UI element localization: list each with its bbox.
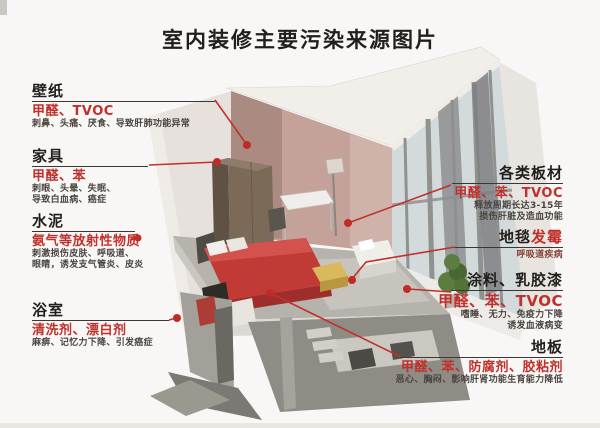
page-title: 室内装修主要污染来源图片 [0,24,600,54]
floor-title: 地板 [353,339,563,356]
label-bathroom: 浴室 清洗剂、漂白剂 麻痹、记忆力下降、引发癌症 [32,302,242,349]
wallpaper-dot [243,141,251,149]
paint-title: 涂料、乳胶漆 [353,272,563,289]
floor-pollutants: 甲醛、苯、防腐剂、胶粘剂 [353,360,563,375]
label-paint: 涂料、乳胶漆 甲醛、苯、TVOC 嗜睡、无力、免疫力下降 诱发血液病变 [353,272,563,332]
floor-underline [400,357,563,358]
carpet-effects: 呼吸道疾病 [353,250,563,261]
boards-underline [452,183,563,184]
cement-effects: 眼睛，诱发支气管炎、皮炎 [32,260,242,271]
lamp-shade [326,158,344,174]
label-wallpaper: 壁纸 甲醛、TVOC 刺鼻、头痛、厌食、导致肝肺功能异常 [32,83,242,130]
boards-pollutants: 甲醛、苯、TVOC [353,186,563,201]
boards-effects: 释放周期长达3-15年 [353,201,563,212]
bathroom-title: 浴室 [32,302,242,319]
chair [268,207,286,232]
infographic-canvas: 室内装修主要污染来源图片 壁纸 甲醛、TVOC 刺鼻、头痛、厌食、导致肝肺功能异… [0,0,600,428]
carpet-title-black: 地毯 [499,228,531,246]
carpet-underline [455,247,563,248]
wallpaper-underline [32,101,215,102]
boards-dot [344,219,352,227]
furniture-underline [32,166,148,167]
floor-effects: 恶心、胸闷、影响肝肾功能生育能力降低 [353,375,563,386]
paint-effects: 嗜睡、无力、免疫力下降 [353,310,563,321]
bathroom-effects: 麻痹、记忆力下降、引发癌症 [32,338,242,349]
furniture-pollutants: 甲醛、苯 [32,169,242,184]
label-furniture: 家具 甲醛、苯 刺眼、头晕、失眠、 导致白血病、癌症 [32,148,242,206]
furniture-effects: 刺眼、头晕、失眠、 [32,184,242,195]
cement-pollutants: 氨气等放射性物质 [32,234,242,249]
label-carpet: 地毯发霉 呼吸道疾病 [353,229,563,261]
furniture-effects: 导致白血病、癌症 [32,195,242,206]
paint-effects: 诱发血液病变 [353,321,563,332]
carpet-title-red: 发霉 [531,228,563,246]
label-floor: 地板 甲醛、苯、防腐剂、胶粘剂 恶心、胸闷、影响肝肾功能生育能力降低 [353,339,563,386]
boards-effects: 损伤肝脏及造血功能 [353,212,563,223]
carpet-title: 地毯发霉 [353,229,563,246]
paint-pollutants: 甲醛、苯、TVOC [353,293,563,310]
corner-smudge [0,0,7,15]
label-cement: 水泥 氨气等放射性物质 刺激损伤皮肤、呼吸道、 眼睛，诱发支气管炎、皮炎 [32,213,242,271]
furniture-title: 家具 [32,148,242,165]
floor-dot [266,289,274,297]
cement-underline [32,231,135,232]
bathroom-underline [32,320,169,321]
cement-effects: 刺激损伤皮肤、呼吸道、 [32,249,242,260]
boards-title: 各类板材 [353,165,563,182]
paint-underline [451,290,563,291]
wallpaper-pollutants: 甲醛、TVOC [32,104,242,119]
cement-title: 水泥 [32,213,242,230]
wallpaper-title: 壁纸 [32,83,242,100]
label-boards: 各类板材 甲醛、苯、TVOC 释放周期长达3-15年 损伤肝脏及造血功能 [353,165,563,223]
bathroom-pollutants: 清洗剂、漂白剂 [32,323,242,338]
wallpaper-effects: 刺鼻、头痛、厌食、导致肝肺功能异常 [32,119,242,130]
bottom-edge-strip [0,423,600,428]
